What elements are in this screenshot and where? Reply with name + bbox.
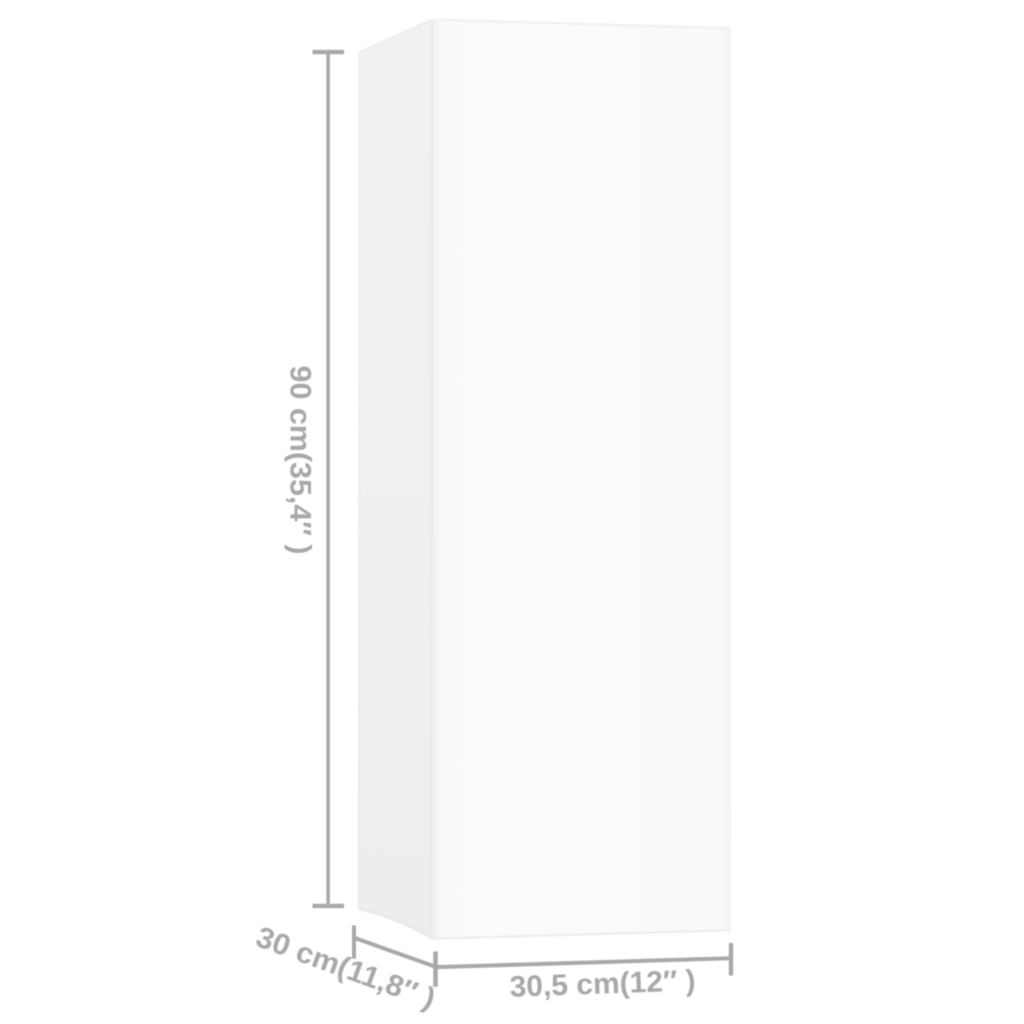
svg-text:30,5 cm(12″ ): 30,5 cm(12″ ) [509, 964, 696, 1003]
svg-text:90 cm(35,4″ ): 90 cm(35,4″ ) [284, 366, 317, 555]
